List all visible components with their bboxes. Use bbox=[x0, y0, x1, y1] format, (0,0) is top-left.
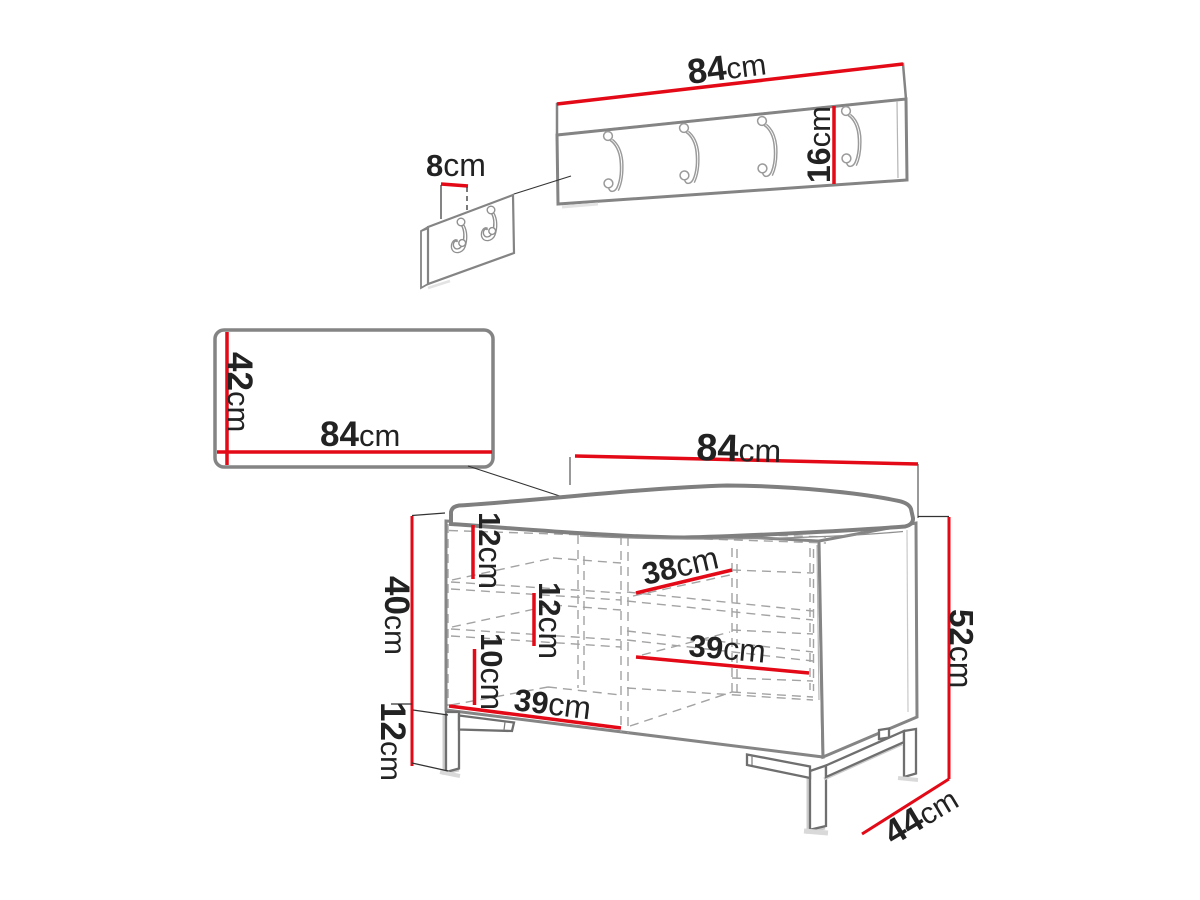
svg-text:52cm: 52cm bbox=[943, 609, 980, 688]
svg-text:40cm: 40cm bbox=[377, 576, 416, 655]
svg-text:84cm: 84cm bbox=[320, 415, 400, 454]
svg-text:12cm: 12cm bbox=[532, 582, 568, 659]
svg-text:44cm: 44cm bbox=[877, 779, 965, 853]
svg-text:10cm: 10cm bbox=[474, 633, 510, 710]
svg-text:12cm: 12cm bbox=[373, 702, 412, 781]
svg-text:8cm: 8cm bbox=[426, 147, 486, 183]
svg-text:42cm: 42cm bbox=[220, 352, 259, 432]
svg-text:39cm: 39cm bbox=[687, 627, 767, 670]
svg-text:16cm: 16cm bbox=[801, 106, 837, 183]
svg-text:84cm: 84cm bbox=[696, 427, 782, 471]
svg-text:12cm: 12cm bbox=[472, 512, 508, 589]
